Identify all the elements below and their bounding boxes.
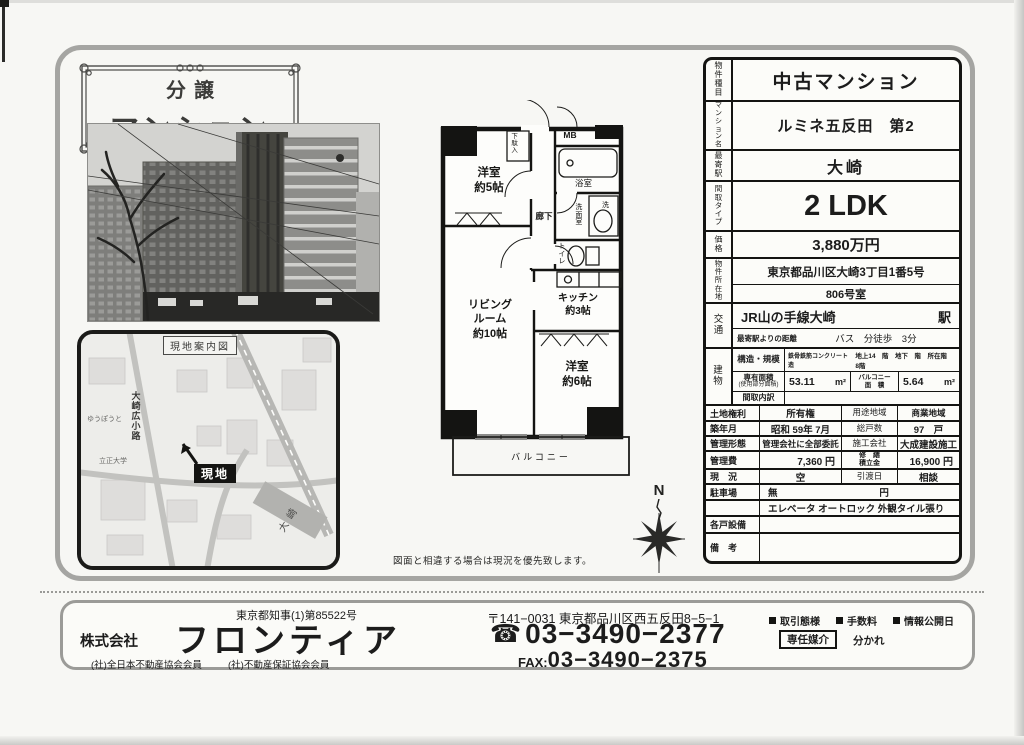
parking-unit: 円 — [879, 485, 889, 499]
layout-value: 2 LDK — [733, 182, 959, 230]
parking-label: 駐車場 — [706, 485, 760, 499]
company-prefix: 株式会社 — [80, 630, 138, 651]
room-bedroom6: 洋室 約6帖 — [539, 360, 615, 390]
info-date-label: 情報公開日 — [904, 613, 954, 628]
bullet-icon — [769, 617, 776, 624]
total-units-label: 総戸数 — [842, 422, 898, 435]
room-living: リビング ルーム 約10帖 — [453, 298, 527, 341]
deal-type-value: 専任媒介 — [779, 630, 837, 649]
area-sublabel: (使用部分面積) — [739, 382, 779, 389]
row-building-details: 建物 構造・規模 鉄骨鉄筋コンクリート造 地上14 階 地下 階 所在階 8階 … — [706, 347, 959, 404]
company-name: フロンティア — [175, 613, 401, 662]
legend-row: 取引態様 手数料 情報公開日 — [769, 613, 954, 628]
land-rights-label: 土地権利 — [706, 406, 760, 420]
access-label: 交通 — [713, 315, 723, 336]
zoning-label: 用途地域 — [842, 406, 898, 420]
room-kitchen-name: キッチン — [541, 292, 615, 305]
structure-value: 鉄骨鉄筋コンクリート造 — [788, 351, 849, 369]
fax-number: 03−3490−2375 — [548, 647, 708, 673]
building-details-label: 建物 — [713, 366, 723, 387]
floor-plan: 洋室 約5帖 下駄入 MB 浴室 廊下 洗面室 洗 トイレ キッチン 約3帖 リ… — [437, 100, 643, 480]
row-unit-equipment: 各戸設備 — [706, 515, 959, 532]
fax-label: FAX: — [518, 655, 548, 670]
row-remarks: 備 考 — [706, 532, 959, 561]
map-graphic — [77, 330, 340, 570]
row-management-fee: 管理費 7,360 円 修 繕 積立金 16,900 円 — [706, 450, 959, 468]
repair-fund-label-l2: 積立金 — [859, 460, 880, 468]
row-built-date: 築年月 昭和 59年 7月 総戸数 97 戸 — [706, 420, 959, 435]
room-living-l2: ルーム — [453, 312, 527, 326]
price-label: 価格 — [714, 236, 723, 254]
distance-label: 最寄駅よりの距離 — [737, 333, 797, 344]
phone-row: ☎ 03−3490−2377 — [490, 618, 726, 650]
management-label: 管理形態 — [706, 437, 760, 450]
membership-2: (社)不動産保証協会会員 — [228, 657, 329, 671]
room-bedroom6-name: 洋室 — [539, 360, 615, 375]
washroom-label: 洗面室 — [575, 204, 583, 227]
phone-number: 03−3490−2377 — [525, 618, 725, 650]
layout-breakdown-value — [785, 392, 959, 404]
row-access: 交通 JR山の手線大崎 駅 最寄駅よりの距離 バス 分徒歩 3分 — [706, 302, 959, 347]
cut-line — [40, 591, 984, 593]
station-label: 最寄駅 — [714, 152, 723, 178]
distance-value: バス 分徒歩 3分 — [797, 331, 955, 345]
shoebox-label: 下駄入 — [511, 133, 518, 154]
bullet-icon — [893, 617, 900, 624]
row-features: エレベータ オートロック 外観タイル張り — [706, 499, 959, 515]
property-type-label: 物件種目 — [714, 62, 723, 97]
layout-breakdown-label: 間取内訳 — [733, 392, 785, 404]
map-title: 現地案内図 — [163, 336, 237, 355]
row-address: 物件所在地 東京都品川区大崎3丁目1番5号 806号室 — [706, 257, 959, 302]
agency-footer: 東京都知事(1)第85522号 株式会社 フロンティア (社)全日本不動産協会会… — [60, 600, 975, 670]
structure-label: 構造・規模 — [733, 349, 785, 371]
row-property-type: 物件種目 中古マンション — [706, 60, 959, 100]
building-name-value: ルミネ五反田 第2 — [733, 102, 959, 149]
constructor-label: 施工会社 — [842, 437, 898, 450]
unit-equipment-label: 各戸設備 — [706, 517, 760, 532]
scan-edge-right — [1014, 0, 1024, 745]
membership-1: (社)全日本不動産協会会員 — [91, 657, 202, 671]
row-management: 管理形態 管理会社に全部委託 施工会社 大成建設施工 — [706, 435, 959, 450]
row-parking: 駐車場 無 円 — [706, 483, 959, 499]
room-number-value: 806号室 — [733, 284, 959, 302]
parking-value: 無 — [760, 485, 778, 499]
access-line-value: JR山の手線大崎 — [741, 307, 836, 326]
room-living-l1: リビング — [453, 298, 527, 312]
plan-disclaimer: 図面と相違する場合は現況を優先致します。 — [393, 553, 592, 567]
badge-line1: 分譲 — [76, 74, 304, 103]
balcony-label: バルコニー — [491, 450, 591, 463]
row-layout: 間取タイプ 2 LDK — [706, 180, 959, 230]
access-station-suffix: 駅 — [938, 307, 951, 326]
scan-artifact — [0, 0, 9, 7]
location-map: 現地案内図 現地 大崎 大崎広小路 立正大学 ゆうぽうと — [77, 330, 340, 570]
bullet-icon — [836, 617, 843, 624]
structure-floors: 地上14 階 地下 階 所在階 8階 — [855, 350, 956, 370]
features-value: エレベータ オートロック 外観タイル張り — [760, 501, 959, 515]
current-status-value: 空 — [760, 470, 842, 483]
land-rights-value: 所有権 — [760, 406, 842, 420]
row-price: 価格 3,880万円 — [706, 230, 959, 257]
constructor-value: 大成建設施工 — [898, 437, 959, 450]
balcony-area-value: 5.64 — [903, 376, 923, 388]
balcony-area-unit: m² — [944, 377, 955, 387]
corridor-label: 廊下 — [533, 210, 555, 222]
room-bedroom5: 洋室 約5帖 — [451, 166, 527, 196]
area-unit: m² — [835, 377, 846, 387]
address-label: 物件所在地 — [714, 260, 722, 301]
row-land-rights: 土地権利 所有権 用途地域 商業地域 — [706, 404, 959, 420]
map-street-label: 大崎広小路 — [131, 392, 141, 441]
toilet-label: トイレ — [558, 243, 566, 266]
property-type-value: 中古マンション — [733, 60, 959, 100]
row-building-name: マンション名 ルミネ五反田 第2 — [706, 100, 959, 149]
repair-fund-label-l1: 修 繕 — [859, 452, 880, 460]
room-kitchen: キッチン 約3帖 — [541, 292, 615, 318]
building-photo — [88, 124, 379, 321]
total-units-value: 97 戸 — [898, 422, 959, 435]
row-current-status: 現 況 空 引渡日 相談 — [706, 468, 959, 483]
commission-label: 手数料 — [847, 613, 877, 628]
map-poi-university: 立正大学 — [99, 456, 127, 466]
room-bedroom6-size: 約6帖 — [539, 375, 615, 390]
compass: N — [627, 482, 691, 578]
management-value: 管理会社に全部委託 — [760, 437, 842, 450]
room-bedroom5-name: 洋室 — [451, 166, 527, 181]
compass-north-label: N — [627, 482, 691, 499]
current-status-label: 現 況 — [706, 470, 760, 483]
zoning-value: 商業地域 — [898, 406, 959, 420]
room-bedroom5-size: 約5帖 — [451, 181, 527, 196]
scan-artifact — [2, 0, 5, 62]
property-spec-table: 物件種目 中古マンション マンション名 ルミネ五反田 第2 最寄駅 大崎 間取タ… — [703, 57, 962, 564]
fax-row: FAX: 03−3490−2375 — [518, 647, 708, 673]
management-fee-value: 7,360 円 — [760, 452, 842, 468]
scan-edge-top — [0, 0, 1024, 3]
station-value: 大崎 — [733, 151, 959, 180]
bath-label: 浴室 — [575, 177, 592, 189]
map-poi-hall: ゆうぽうと — [87, 414, 122, 424]
remarks-value — [760, 534, 959, 561]
management-fee-label: 管理費 — [706, 452, 760, 468]
built-date-value: 昭和 59年 7月 — [760, 422, 842, 435]
unit-equipment-value — [760, 517, 959, 532]
compass-rose-icon — [627, 499, 691, 577]
address-value: 東京都品川区大崎3丁目1番5号 — [733, 259, 959, 284]
handover-label: 引渡日 — [842, 470, 898, 483]
commission-value: 分かれ — [853, 633, 885, 648]
price-value: 3,880万円 — [733, 232, 959, 257]
room-kitchen-size: 約3帖 — [541, 305, 615, 318]
floor-plan-graphic — [437, 100, 643, 480]
remarks-label: 備 考 — [706, 534, 760, 561]
handover-value: 相談 — [898, 470, 959, 483]
map-site-marker: 現地 — [194, 464, 236, 483]
phone-icon: ☎ — [490, 619, 521, 649]
balcony-area-label-l2: 面 積 — [865, 382, 885, 389]
balcony-area-label-l1: バルコニー — [858, 374, 890, 381]
scan-edge-bottom — [0, 736, 1024, 745]
real-estate-flyer: 分譲 マンション — [0, 0, 1024, 745]
room-living-l3: 約10帖 — [453, 327, 527, 341]
area-value: 53.11 — [789, 376, 815, 388]
building-name-label: マンション名 — [715, 102, 723, 148]
meter-box-label: MB — [556, 130, 584, 140]
built-date-label: 築年月 — [706, 422, 760, 435]
repair-fund-value: 16,900 円 — [898, 452, 959, 468]
deal-type-label: 取引態様 — [780, 613, 820, 628]
layout-label: 間取タイプ — [714, 185, 722, 226]
row-station: 最寄駅 大崎 — [706, 149, 959, 180]
washer-label: 洗 — [602, 200, 609, 210]
